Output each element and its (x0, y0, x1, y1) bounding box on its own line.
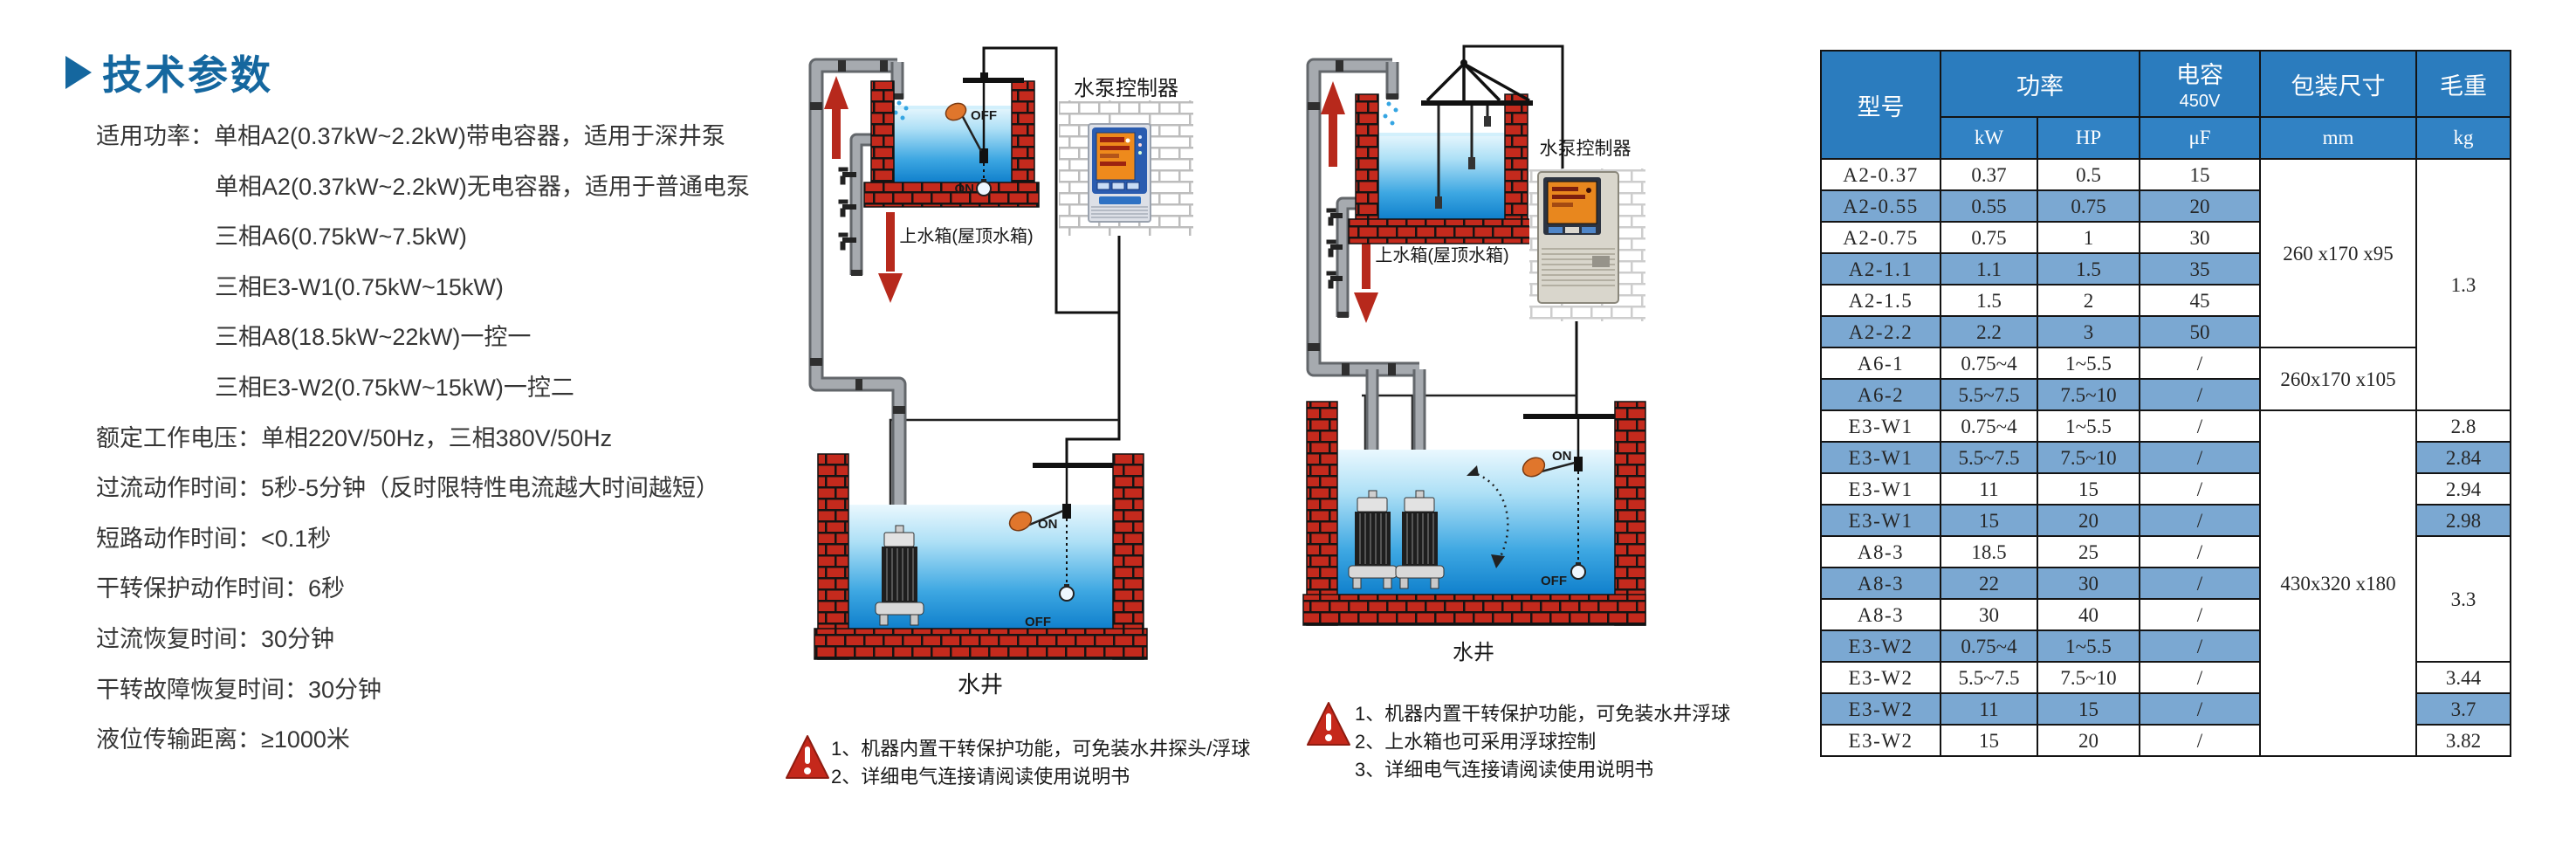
table-cell: / (2140, 725, 2260, 756)
table-cell: 15 (2037, 473, 2140, 505)
well-label: 水井 (1453, 641, 1494, 664)
table-cell: 0.55 (1941, 190, 2037, 222)
table-row: A2-0.370.370.515260 x170 x951.3 (1821, 159, 2511, 190)
warning-icon (1308, 703, 1350, 745)
table-cell: 0.5 (2037, 159, 2140, 190)
table-cell: A8-3 (1821, 536, 1941, 568)
float-off-label: OFF (1025, 615, 1051, 629)
col-header-capacitor: 电容 450V (2140, 51, 2260, 117)
table-row: E3-W10.75~41~5.5/430x320 x1802.8 (1821, 410, 2511, 442)
installation-diagram-dual-pump: 上水箱(屋顶水箱) 水泵控制器 (1301, 22, 1824, 834)
table-cell: / (2140, 505, 2260, 536)
table-cell: 0.75 (2037, 190, 2140, 222)
table-cell: / (2140, 410, 2260, 442)
table-cell: 7.5~10 (2037, 379, 2140, 410)
table-cell: 1.5 (1941, 285, 2037, 316)
spec-table-body: A2-0.370.370.515260 x170 x951.3A2-0.550.… (1821, 159, 2511, 756)
table-cell: 1 (2037, 222, 2140, 253)
well: ON OFF (1303, 402, 1645, 625)
spec-table: 型号 功率 电容 450V 包装尺寸 毛重 kW HP μF mm kg A2-… (1820, 50, 2511, 757)
table-cell: 40 (2037, 599, 2140, 630)
table-cell: 11 (1941, 473, 2037, 505)
capacitor-label: 电容 (2140, 56, 2259, 90)
table-cell: / (2140, 630, 2260, 662)
col-header-packing: 包装尺寸 (2260, 51, 2416, 117)
table-cell: 2.94 (2416, 473, 2511, 505)
table-cell: 3.44 (2416, 662, 2511, 693)
up-arrow-icon (824, 76, 848, 159)
water-tank (1349, 59, 1535, 244)
down-arrow-icon (878, 212, 903, 303)
controller-label: 水泵控制器 (1540, 139, 1631, 159)
table-cell: 0.37 (1941, 159, 2037, 190)
table-cell: A8-3 (1821, 599, 1941, 630)
table-cell: 25 (2037, 536, 2140, 568)
table-cell: / (2140, 379, 2260, 410)
table-cell: 2.84 (2416, 442, 2511, 473)
table-cell: 30 (1941, 599, 2037, 630)
table-cell: 1~5.5 (2037, 347, 2140, 379)
table-cell: 35 (2140, 253, 2260, 285)
table-cell: 260x170 x105 (2260, 347, 2416, 410)
table-cell: 20 (2037, 725, 2140, 756)
float-off-label: OFF (1541, 574, 1567, 588)
table-cell: 1~5.5 (2037, 630, 2140, 662)
tank-label: 上水箱(屋顶水箱) (899, 226, 1033, 246)
unit-kw: kW (1941, 117, 2037, 159)
table-cell: / (2140, 693, 2260, 725)
col-header-power: 功率 (1941, 51, 2140, 117)
spec-line: 干转故障恢复时间：30分钟 (96, 665, 768, 716)
table-cell: 1.3 (2416, 159, 2511, 410)
water-drips (1384, 102, 1398, 126)
float-off-label: OFF (971, 108, 997, 123)
datasheet-page: 技术参数 适用功率：单相A2(0.37kW~2.2kW)带电容器，适用于深井泵 … (0, 0, 2576, 853)
page-title: 技术参数 (65, 44, 273, 101)
table-cell: 15 (1941, 725, 2037, 756)
table-row: A6-10.75~41~5.5/260x170 x105 (1821, 347, 2511, 379)
table-cell: 7.5~10 (2037, 662, 2140, 693)
table-cell: A2-0.55 (1821, 190, 1941, 222)
table-cell: / (2140, 536, 2260, 568)
table-cell: / (2140, 473, 2260, 505)
up-arrow-icon (1321, 81, 1345, 167)
warning-icon (787, 736, 828, 778)
table-cell: E3-W1 (1821, 473, 1941, 505)
table-cell: / (2140, 442, 2260, 473)
well: ON OFF (814, 454, 1147, 659)
table-cell: 22 (1941, 568, 2037, 599)
spec-list: 适用功率：单相A2(0.37kW~2.2kW)带电容器，适用于深井泵 单相A2(… (96, 112, 768, 766)
title-arrow-icon (65, 56, 92, 89)
table-cell: A2-2.2 (1821, 316, 1941, 347)
table-cell: 7.5~10 (2037, 442, 2140, 473)
table-cell: 0.75 (1941, 222, 2037, 253)
unit-kg: kg (2416, 117, 2511, 159)
unit-uf: μF (2140, 117, 2260, 159)
table-cell: 30 (2140, 222, 2260, 253)
table-cell: A2-1.1 (1821, 253, 1941, 285)
table-cell: 2.98 (2416, 505, 2511, 536)
table-cell: 2 (2037, 285, 2140, 316)
pump-controller: 水泵控制器 (1059, 77, 1193, 236)
table-cell: 2.8 (2416, 410, 2511, 442)
table-cell: 30 (2037, 568, 2140, 599)
spec-line: 三相A6(0.75kW~7.5kW) (215, 212, 768, 263)
unit-hp: HP (2037, 117, 2140, 159)
table-cell: 0.75~4 (1941, 347, 2037, 379)
note-line: 1、机器内置干转保护功能，可免装水井浮球 (1355, 703, 1730, 725)
spec-line: 短路动作时间：<0.1秒 (96, 514, 768, 565)
table-cell: E3-W1 (1821, 442, 1941, 473)
table-cell: 15 (2140, 159, 2260, 190)
table-cell: 1~5.5 (2037, 410, 2140, 442)
spec-line: 干转保护动作时间：6秒 (96, 564, 768, 615)
table-cell: 50 (2140, 316, 2260, 347)
table-cell: 5.5~7.5 (1941, 442, 2037, 473)
col-header-model: 型号 (1821, 51, 1941, 159)
table-header: 型号 功率 电容 450V 包装尺寸 毛重 kW HP μF mm kg (1821, 51, 2511, 159)
spec-line: 过流恢复时间：30分钟 (96, 615, 768, 665)
float-on-label: ON (1552, 449, 1572, 464)
well-label: 水井 (958, 671, 1003, 698)
water-tank (864, 81, 1039, 207)
table-cell: 5.5~7.5 (1941, 662, 2037, 693)
table-cell: 45 (2140, 285, 2260, 316)
controller-label: 水泵控制器 (1074, 77, 1178, 100)
pump-controller: 水泵控制器 (1529, 139, 1645, 321)
spec-line: 过流动作时间：5秒-5分钟（反时限特性电流越大时间越短） (96, 464, 768, 514)
table-cell: 1.5 (2037, 253, 2140, 285)
table-cell: 3.82 (2416, 725, 2511, 756)
table-cell: 20 (2037, 505, 2140, 536)
table-cell: A2-1.5 (1821, 285, 1941, 316)
table-cell: 15 (2037, 693, 2140, 725)
spec-line: 三相E3-W1(0.75kW~15kW) (215, 263, 768, 313)
tank-label: 上水箱(屋顶水箱) (1375, 245, 1508, 265)
table-cell: A2-0.37 (1821, 159, 1941, 190)
table-cell: / (2140, 347, 2260, 379)
table-cell: 11 (1941, 693, 2037, 725)
spec-line: 液位传输距离：≥1000米 (96, 715, 768, 766)
table-cell: / (2140, 662, 2260, 693)
table-cell: A6-2 (1821, 379, 1941, 410)
table-cell: 3.3 (2416, 536, 2511, 662)
table-cell: E3-W2 (1821, 630, 1941, 662)
table-cell: E3-W2 (1821, 725, 1941, 756)
page-title-text: 技术参数 (102, 44, 273, 101)
table-cell: 20 (2140, 190, 2260, 222)
note-line: 3、详细电气连接请阅读使用说明书 (1355, 759, 1653, 781)
table-cell: / (2140, 568, 2260, 599)
table-cell: A2-0.75 (1821, 222, 1941, 253)
table-cell: E3-W1 (1821, 505, 1941, 536)
table-cell: 0.75~4 (1941, 410, 2037, 442)
table-cell: 2.2 (1941, 316, 2037, 347)
table-cell: 3.7 (2416, 693, 2511, 725)
table-cell: A6-1 (1821, 347, 1941, 379)
spec-line: 三相A8(18.5kW~22kW)一控一 (215, 313, 768, 363)
table-cell: / (2140, 599, 2260, 630)
float-on-label: ON (1038, 517, 1058, 532)
note-line: 2、详细电气连接请阅读使用说明书 (831, 766, 1130, 788)
note-line: 1、机器内置干转保护功能，可免装水井探头/浮球 (831, 738, 1250, 760)
table-cell: E3-W2 (1821, 693, 1941, 725)
table-cell: 3 (2037, 316, 2140, 347)
float-on-label: ON (955, 182, 975, 196)
spec-line: 三相E3-W2(0.75kW~15kW)一控二 (215, 363, 768, 414)
table-cell: E3-W2 (1821, 662, 1941, 693)
capacitor-voltage: 450V (2140, 92, 2259, 112)
note-line: 2、上水箱也可采用浮球控制 (1355, 731, 1596, 753)
table-cell: 1.1 (1941, 253, 2037, 285)
table-cell: E3-W1 (1821, 410, 1941, 442)
table-cell: 0.75~4 (1941, 630, 2037, 662)
table-cell: 430x320 x180 (2260, 410, 2416, 756)
spec-line: 额定工作电压：单相220V/50Hz，三相380V/50Hz (96, 414, 768, 464)
table-cell: A8-3 (1821, 568, 1941, 599)
table-cell: 260 x170 x95 (2260, 159, 2416, 347)
table-cell: 18.5 (1941, 536, 2037, 568)
spec-line: 单相A2(0.37kW~2.2kW)无电容器，适用于普通电泵 (215, 162, 768, 213)
unit-mm: mm (2260, 117, 2416, 159)
spec-line: 适用功率：单相A2(0.37kW~2.2kW)带电容器，适用于深井泵 (96, 112, 768, 162)
col-header-weight: 毛重 (2416, 51, 2511, 117)
table-cell: 15 (1941, 505, 2037, 536)
table-cell: 5.5~7.5 (1941, 379, 2037, 410)
